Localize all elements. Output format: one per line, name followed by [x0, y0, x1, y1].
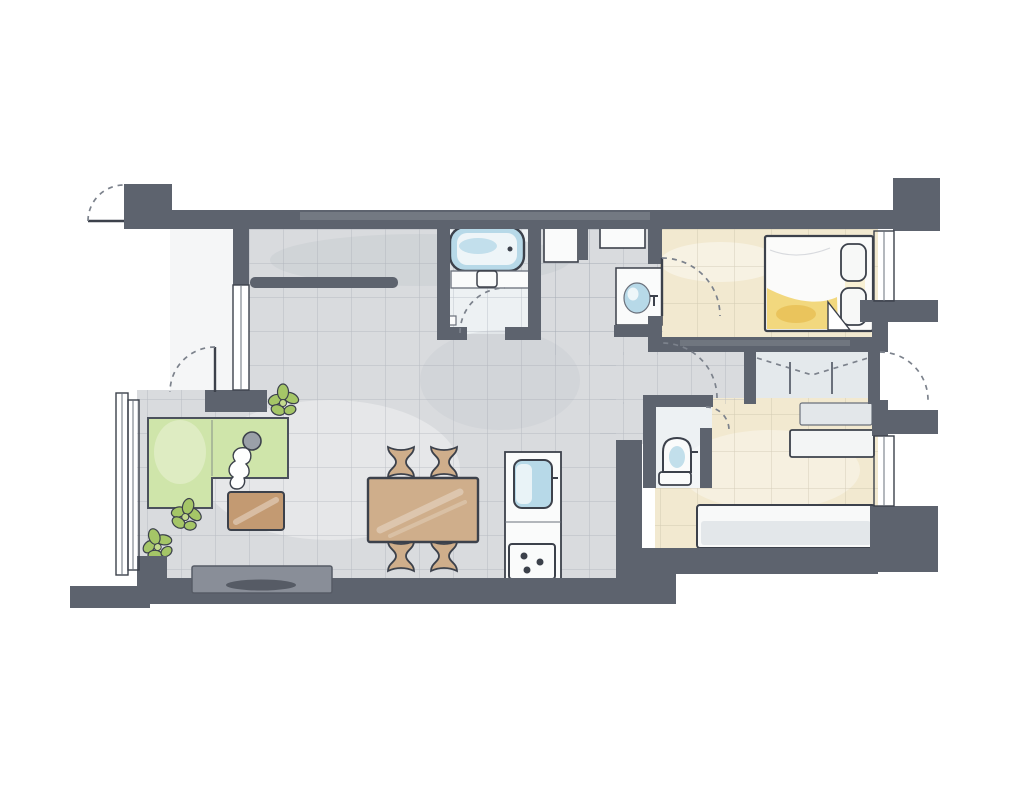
wall-kitchen-partition: [616, 440, 642, 552]
stove-burner: [524, 567, 531, 574]
floor-closet: [756, 352, 870, 404]
wall-watercolor-highlight: [300, 212, 650, 220]
wall-toilet-right: [700, 428, 712, 488]
kitchen-fixtures: [505, 452, 561, 580]
wall-right-step: [888, 410, 938, 434]
wall-bathroom-right: [528, 222, 541, 340]
person-head: [243, 432, 261, 450]
wall-right-mid: [860, 300, 938, 322]
wall-bottomleft-corner: [137, 556, 167, 602]
storage-closet-b: [600, 226, 645, 248]
kitchen-sink-highlight: [516, 464, 532, 504]
stove-burner: [537, 559, 544, 566]
wall-bedroom2-bottom: [641, 548, 878, 574]
shelf: [800, 403, 872, 425]
wall-bedroom1-left-a: [648, 214, 662, 264]
wall-hanging-rail: [250, 277, 398, 288]
tile-grid-vestibule: [600, 402, 645, 444]
bedroom-1-furniture: [765, 236, 873, 331]
wall-bathroom-left: [437, 222, 450, 340]
wall-entry-pillar: [124, 184, 172, 229]
wall-right-stub: [872, 400, 888, 436]
desk: [790, 430, 874, 457]
bed-blanket-shadow: [776, 305, 816, 323]
wall-left-stub: [233, 229, 249, 285]
gas-stove: [509, 544, 555, 579]
wall-watercolor-highlight: [680, 340, 850, 346]
toilet-tank: [659, 472, 691, 485]
wall-bathroom-bottom-a: [437, 327, 467, 340]
wall-toilet-left: [643, 395, 656, 488]
washbasin-highlight: [628, 288, 639, 301]
wall-bottomright-corner: [870, 506, 938, 572]
wall-living-stub: [205, 390, 267, 412]
sofa-cushion-highlight: [154, 420, 206, 484]
floor-entry: [170, 229, 233, 390]
bathtub-water: [459, 238, 497, 254]
floor-plan-canvas: [0, 0, 1024, 812]
wall-closet-stub: [578, 214, 588, 260]
wall-vanity-bottom: [614, 325, 662, 337]
wall-bathroom-bottom-b: [505, 327, 541, 340]
tv-area: [192, 566, 332, 593]
wall-closet-right: [868, 352, 880, 404]
wall-topright-pillar: [893, 178, 940, 231]
bathroom-sink: [477, 271, 497, 287]
bathtub-drain: [508, 247, 513, 252]
stove-burner: [521, 553, 528, 560]
single-bed-blanket: [701, 521, 871, 545]
toilet-bowl-water: [669, 446, 685, 468]
tv: [226, 580, 296, 591]
wall-right-doorjamb: [872, 322, 888, 352]
pillow: [841, 244, 866, 281]
wall-closet-left: [744, 352, 756, 404]
storage-closet-a: [544, 226, 578, 262]
